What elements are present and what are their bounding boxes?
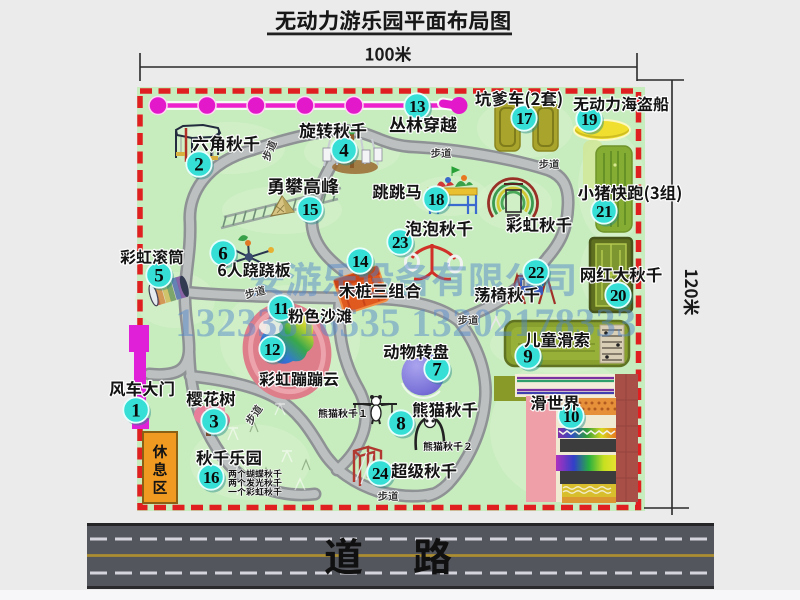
svg-text:12: 12	[264, 340, 280, 359]
svg-text:6: 6	[218, 244, 228, 265]
svg-text:14: 14	[352, 252, 369, 271]
svg-text:11: 11	[273, 299, 288, 318]
svg-text:8: 8	[396, 414, 406, 435]
svg-text:7: 7	[432, 360, 442, 381]
svg-text:24: 24	[372, 464, 389, 483]
svg-text:9: 9	[523, 347, 533, 368]
svg-text:4: 4	[339, 141, 349, 162]
svg-text:13: 13	[409, 97, 425, 116]
svg-text:20: 20	[610, 286, 626, 305]
svg-text:17: 17	[516, 109, 533, 128]
svg-text:2: 2	[194, 155, 204, 176]
svg-text:21: 21	[596, 202, 612, 221]
svg-text:5: 5	[154, 266, 164, 287]
svg-text:22: 22	[528, 263, 544, 282]
svg-text:18: 18	[428, 190, 444, 209]
svg-text:15: 15	[302, 200, 318, 219]
svg-text:16: 16	[203, 468, 219, 487]
svg-text:1: 1	[131, 401, 141, 422]
svg-text:19: 19	[581, 110, 597, 129]
svg-text:3: 3	[209, 412, 219, 433]
